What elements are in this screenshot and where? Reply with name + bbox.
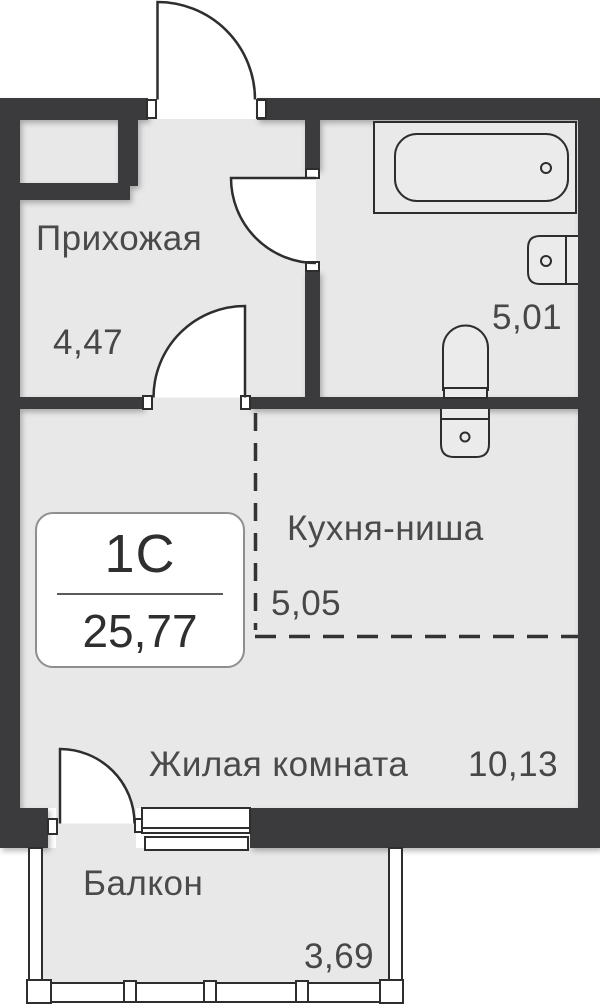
room-door-jamb-left	[143, 396, 152, 409]
unit-total-area: 25,77	[37, 595, 243, 666]
wall-top-left	[0, 98, 148, 120]
wall-bathroom-lower	[305, 271, 320, 409]
balcony-mullion-1	[124, 981, 136, 1002]
wall-interior-left	[20, 397, 143, 409]
bathroom-sink-drain	[541, 256, 551, 266]
room-label-living: Жилая комната	[149, 747, 408, 782]
floor-plan-drawing	[0, 0, 600, 1004]
balcony-glazing-left	[29, 848, 42, 983]
balcony-mullion-3	[296, 981, 308, 1002]
toilet-bowl	[443, 326, 488, 391]
wall-interior-right	[250, 397, 578, 409]
window	[142, 808, 250, 850]
room-area-living: 10,13	[468, 747, 558, 782]
bathroom-sink	[528, 236, 578, 284]
wall-top-right	[257, 98, 600, 120]
entrance-jamb-right	[257, 100, 266, 118]
unit-type: 1С	[37, 514, 243, 593]
room-door-jamb-right	[241, 396, 250, 409]
wall-bathroom-upper	[305, 120, 320, 169]
kitchen-sink-drain	[461, 433, 470, 442]
wall-shaft-right	[118, 120, 138, 186]
balcony-door-jamb-left	[48, 819, 57, 834]
room-area-bathroom: 5,01	[492, 300, 562, 335]
balcony-post-corner-left	[27, 980, 51, 1003]
floor-plan: Прихожая 4,47 5,01 Кухня-ниша 5,05 Жилая…	[0, 0, 600, 1004]
entrance-jamb-left	[147, 100, 156, 118]
room-label-kitchen: Кухня-ниша	[287, 511, 484, 546]
room-label-hallway: Прихожая	[36, 221, 202, 256]
balcony-mullion-2	[204, 981, 216, 1002]
entrance-door-swing	[158, 2, 256, 100]
window-outer	[142, 808, 250, 833]
toilet-tank	[444, 388, 487, 398]
room-area-kitchen: 5,05	[271, 586, 341, 621]
balcony-glazing-right	[389, 848, 402, 983]
bathtub-drain	[541, 163, 551, 173]
wall-shaft-bottom	[20, 183, 130, 200]
balcony-post-corner-right	[380, 980, 403, 1003]
room-label-balcony: Балкон	[83, 866, 203, 901]
room-area-balcony: 3,69	[304, 939, 374, 974]
room-area-hallway: 4,47	[53, 325, 123, 360]
unit-badge: 1С 25,77	[35, 512, 245, 668]
wall-bottom-left	[0, 808, 48, 848]
wall-left	[0, 98, 20, 848]
wall-right	[578, 98, 600, 848]
bathroom-jamb-upper	[306, 169, 319, 178]
window-inner	[145, 837, 248, 850]
wall-bottom-right	[250, 808, 600, 848]
